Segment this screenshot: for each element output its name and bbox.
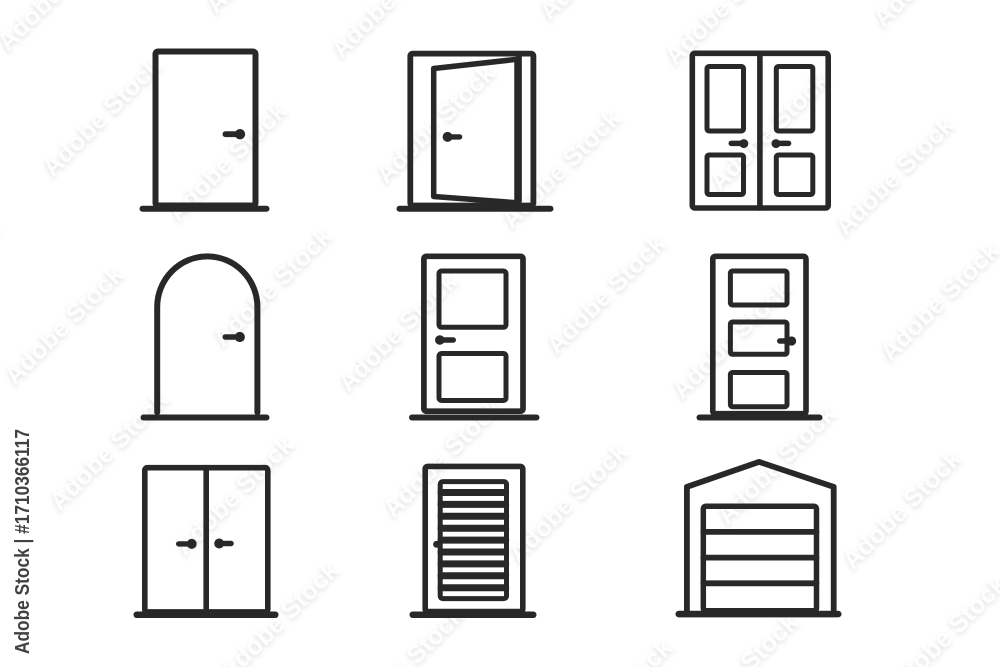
svg-text:Adobe Stock | #1710366117: Adobe Stock | #1710366117 bbox=[12, 429, 34, 654]
